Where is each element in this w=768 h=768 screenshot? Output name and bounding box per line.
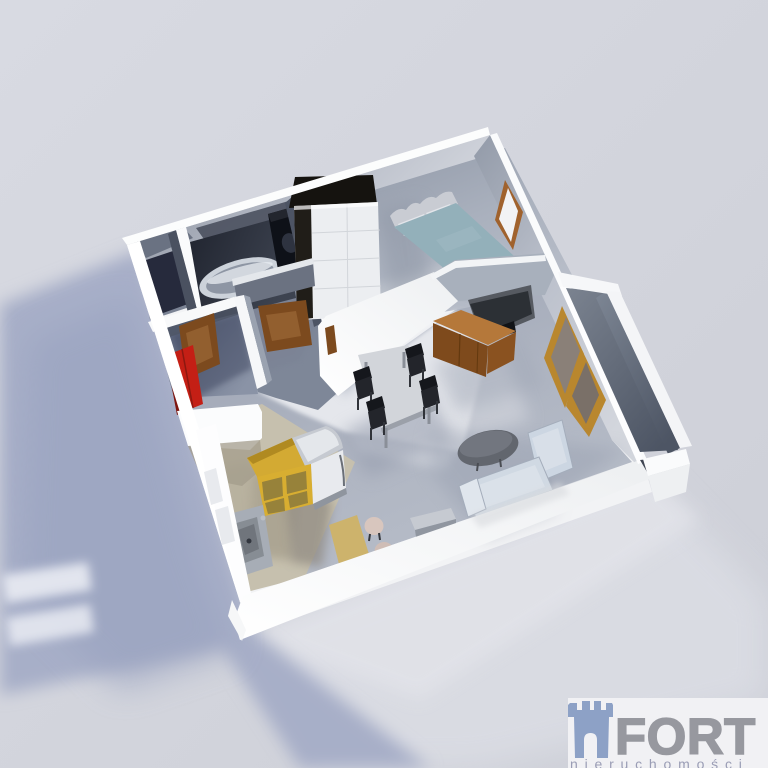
- svg-text:nieruchomości: nieruchomości: [570, 756, 749, 768]
